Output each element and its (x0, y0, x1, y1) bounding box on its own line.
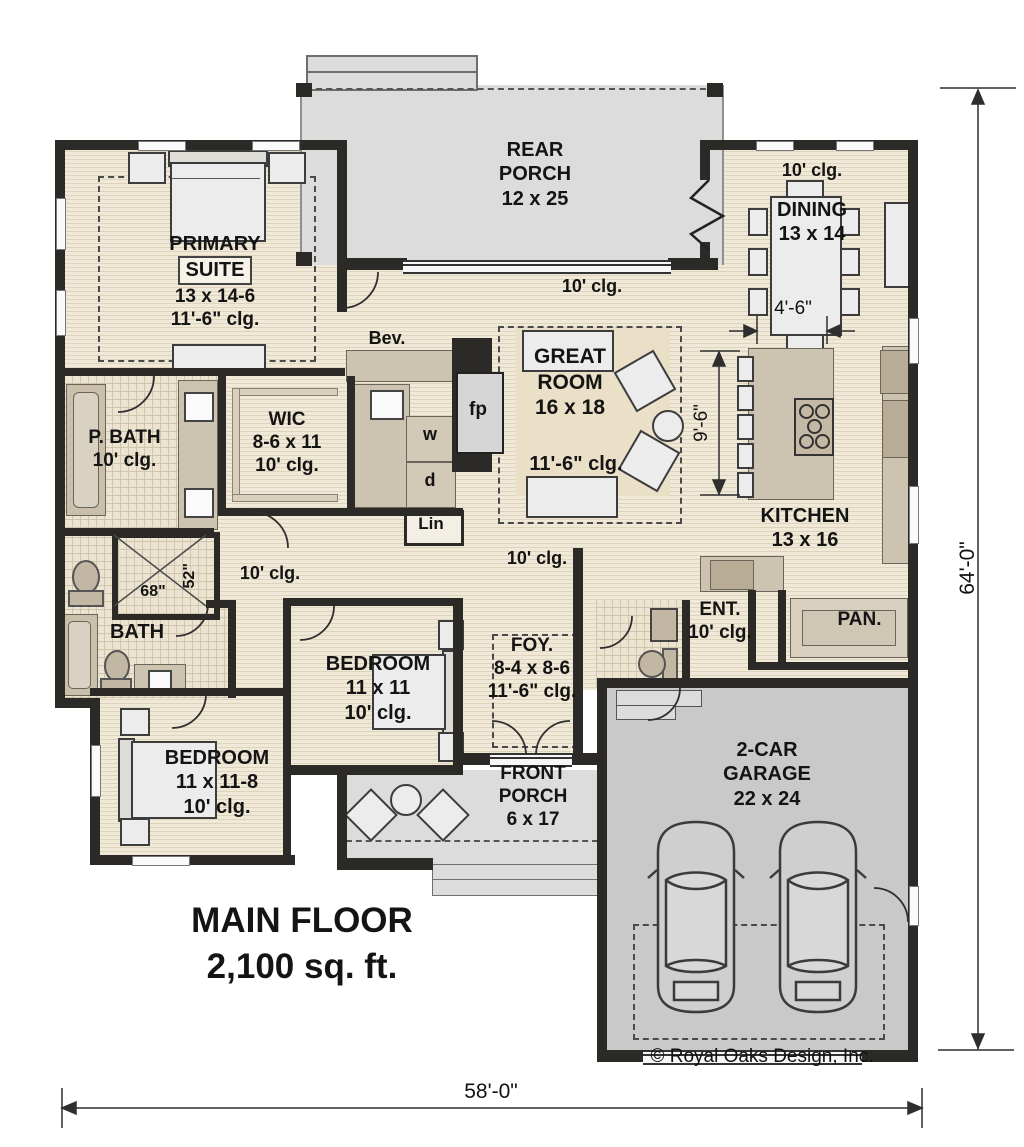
toilet-tank (68, 590, 104, 607)
porch-post (707, 83, 723, 97)
window (132, 856, 190, 866)
wall (283, 598, 461, 606)
front-porch-step (432, 879, 600, 896)
vanity-sink (184, 392, 214, 422)
dining-chair (786, 180, 824, 198)
linen-label: Lin (404, 514, 458, 535)
window (56, 198, 66, 250)
ceiling-note: 10' clg. (222, 563, 318, 585)
wall (700, 140, 918, 150)
window (91, 745, 101, 797)
ceiling-note: 10' clg. (758, 160, 866, 182)
nightstand (268, 152, 306, 184)
window (56, 290, 66, 336)
dim-9-6-label: 9'-6" (691, 393, 713, 453)
wall-ovens (882, 400, 910, 458)
entry-bench (710, 560, 754, 590)
shower (112, 532, 220, 620)
rear-porch-label: REAR PORCH 12 x 25 (470, 138, 600, 211)
wall (778, 590, 786, 670)
dim-width-label: 58'-0" (436, 1080, 546, 1104)
dim-4-6-label: 4'-6" (758, 298, 828, 320)
garage-entry-step (616, 705, 676, 720)
bedroom-front-label: BEDROOM 11 x 11 10' clg. (298, 652, 458, 725)
dryer-label: d (406, 470, 454, 492)
wic-shelf (232, 388, 338, 396)
wall (55, 140, 347, 150)
garage-service-door (909, 886, 919, 926)
burner (815, 404, 830, 419)
wall (60, 368, 345, 376)
wall (908, 140, 918, 695)
window (138, 141, 186, 151)
dining-label: DINING 13 x 14 (756, 198, 868, 247)
stool (737, 443, 754, 469)
toilet-bowl (638, 650, 666, 678)
laundry-sink (370, 390, 404, 420)
sofa (526, 476, 618, 518)
burner (799, 434, 814, 449)
garage-door-outline (633, 924, 885, 1040)
ceiling-note: 10' clg. (487, 548, 587, 570)
side-table (652, 410, 684, 442)
bev-counter (346, 350, 458, 382)
primary-bench (172, 344, 266, 370)
foyer-label: FOY. 8-4 x 8-6 11'-6" clg. (482, 634, 582, 704)
plan-title: MAIN FLOOR 2,100 sq. ft. (152, 898, 452, 989)
bath-tub-inner (68, 621, 91, 689)
great-room-label: GREAT ROOM 16 x 18 (502, 344, 638, 421)
front-porch-label: FRONT PORCH 6 x 17 (468, 762, 598, 832)
stool (737, 414, 754, 440)
wall (228, 600, 236, 698)
primary-bath-label: P. BATH 10' clg. (72, 426, 177, 472)
wall (218, 376, 226, 516)
primary-bed-pillow-line (172, 178, 260, 179)
dining-chair (840, 248, 860, 276)
bath-sink (148, 670, 172, 690)
floor-plan: REAR PORCH 12 x 25 10' clg. 10' clg. DIN… (0, 0, 1024, 1147)
wall (90, 688, 285, 696)
fireplace-label: fp (456, 398, 500, 421)
porch-post (296, 83, 312, 97)
toilet-bowl (72, 560, 100, 594)
nightstand (120, 708, 150, 736)
ceiling-note: 10' clg. (540, 276, 644, 298)
garage-label: 2-CAR GARAGE 22 x 24 (687, 738, 847, 811)
front-porch-roof-line (346, 840, 598, 842)
wic-label: WIC 8-6 x 11 10' clg. (231, 408, 343, 478)
copyright: © Royal Oaks Design, Inc. (612, 1046, 912, 1068)
pantry-label: PAN. (812, 608, 907, 631)
wall (347, 376, 355, 516)
window (836, 141, 874, 151)
vanity-sink (184, 488, 214, 518)
window (909, 318, 919, 364)
dining-chair (748, 248, 768, 276)
washer-label: w (406, 424, 454, 446)
kitchen-label: KITCHEN 13 x 16 (740, 504, 870, 553)
entry-label: ENT. 10' clg. (665, 598, 775, 644)
wall (597, 678, 918, 688)
great-room-ceiling-label: 11'-6" clg. (501, 452, 651, 476)
stool (737, 472, 754, 498)
wall (700, 148, 710, 180)
primary-suite-label: PRIMARY SUITE 13 x 14-6 11'-6" clg. (135, 232, 295, 331)
window (252, 141, 300, 151)
wall (337, 858, 433, 870)
window (756, 141, 794, 151)
bath-label: BATH (92, 620, 182, 644)
stool (737, 356, 754, 382)
wall (283, 765, 463, 775)
burner (815, 434, 830, 449)
burner (799, 404, 814, 419)
dining-chair (840, 288, 860, 316)
stool (737, 385, 754, 411)
wall (908, 688, 918, 1062)
window (909, 486, 919, 544)
wall (345, 258, 407, 270)
nightstand (120, 818, 150, 846)
dim-depth-label: 64'-0" (956, 518, 980, 618)
wall (218, 508, 355, 516)
burner (807, 419, 822, 434)
wall (90, 855, 295, 865)
porch-post (296, 252, 312, 266)
shower-width-label: 68" (126, 582, 180, 602)
wall (668, 258, 718, 270)
wall (64, 528, 214, 536)
patio-sliding-door (403, 260, 671, 274)
porch-table (390, 784, 422, 816)
shower-depth-label: 52" (180, 552, 200, 600)
wall (337, 772, 347, 870)
nightstand (128, 152, 166, 184)
bev-label: Bev. (352, 328, 422, 350)
wall (597, 678, 607, 1062)
bedroom-left-label: BEDROOM 11 x 11-8 10' clg. (137, 746, 297, 819)
rear-porch-roof-line (306, 88, 716, 90)
primary-bed (170, 162, 266, 242)
wall (337, 140, 347, 312)
wic-shelf (232, 494, 338, 502)
wall (748, 662, 918, 670)
